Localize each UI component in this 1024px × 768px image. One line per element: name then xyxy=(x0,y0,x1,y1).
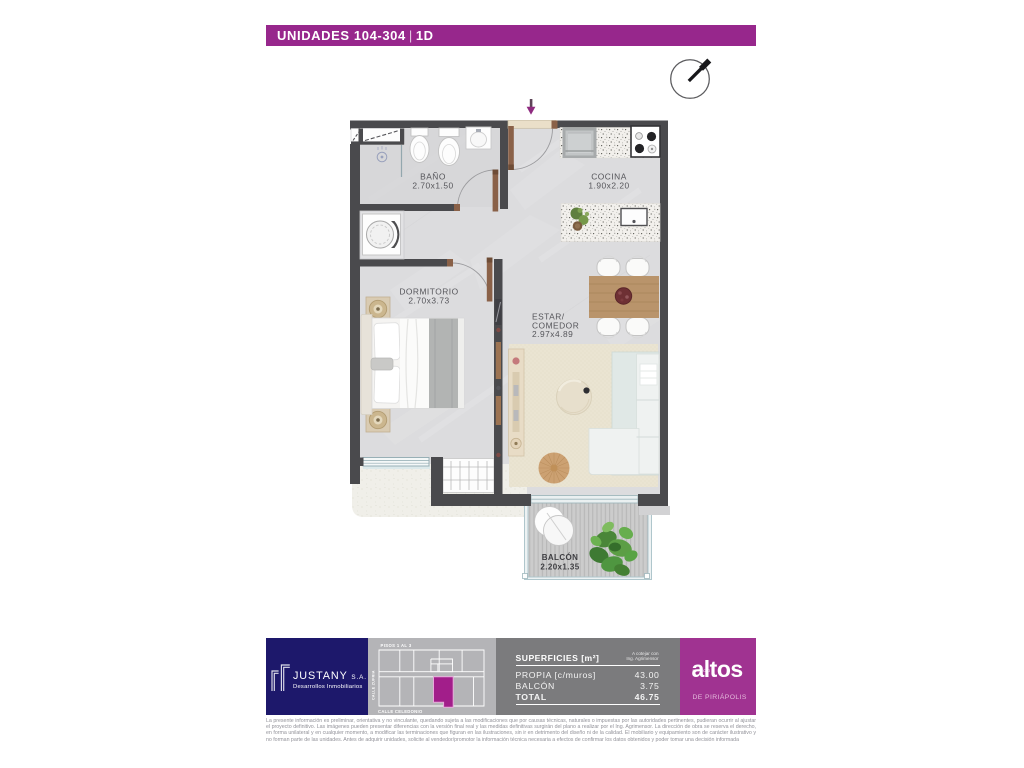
svg-text:2.20x1.35: 2.20x1.35 xyxy=(540,563,579,572)
svg-text:PISOS 1 AL 3: PISOS 1 AL 3 xyxy=(381,643,412,648)
svg-text:2.70x1.50: 2.70x1.50 xyxy=(412,181,453,191)
svg-text:1.90x2.20: 1.90x2.20 xyxy=(588,181,629,191)
svg-text:2.97x4.89: 2.97x4.89 xyxy=(532,329,573,339)
svg-text:CALLE ZUFRIA: CALLE ZUFRIA xyxy=(372,670,376,700)
svg-text:2.70x3.73: 2.70x3.73 xyxy=(408,296,449,306)
svg-text:CALLE CELEDONIO: CALLE CELEDONIO xyxy=(378,709,423,714)
svg-text:BALCÓN: BALCÓN xyxy=(542,553,579,562)
